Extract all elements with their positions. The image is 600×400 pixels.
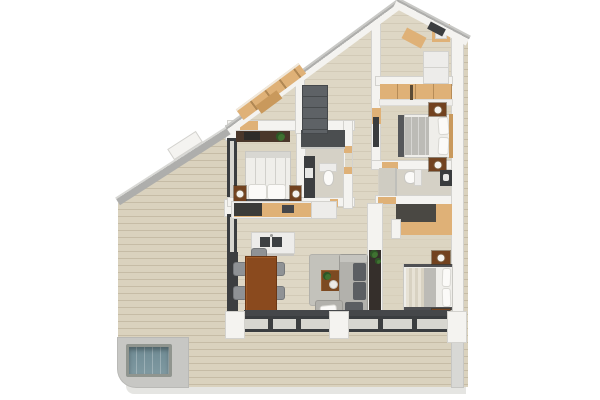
kitchen-cooktop-block <box>234 203 262 216</box>
bedroom3-nightstand-top <box>432 251 450 264</box>
bathroom1-door-gap <box>345 152 352 167</box>
lamp-icon <box>434 161 441 168</box>
door-mullion <box>378 316 383 332</box>
bedroom3-door-threshold <box>378 197 396 204</box>
bathroom1-door-jamb-top <box>344 146 352 153</box>
floor-plan-render <box>0 0 600 400</box>
sofa-cushion <box>353 282 366 300</box>
south-pier-west <box>226 312 244 338</box>
bedroom1-pillow-left <box>248 184 267 200</box>
bedroom2-foot-bench <box>398 115 405 157</box>
island-faucet <box>270 234 273 237</box>
bedroom1-desk-plant <box>276 132 285 141</box>
bedroom1-nightstand-left <box>234 186 246 201</box>
bathroom1-door-jamb-bottom <box>344 167 352 174</box>
kitchen-fridge <box>312 202 336 218</box>
dining-chair <box>234 287 246 299</box>
utility-appliance-bottom <box>424 68 448 83</box>
sofa-armrest <box>340 255 367 262</box>
bedroom2-nightstand-top <box>429 103 446 116</box>
plunge-pool <box>126 344 172 377</box>
bedroom3-duvet-striped <box>406 268 426 308</box>
island-basin-right <box>272 237 282 247</box>
bedroom2-wardrobe-slot <box>410 85 413 100</box>
bedroom1-laptop <box>244 132 260 140</box>
lamp-icon <box>438 254 445 261</box>
hall-wardrobe <box>303 86 327 133</box>
bedroom3-pillow-bottom <box>442 288 452 307</box>
island-basin-left <box>260 237 270 247</box>
wall-east-lower <box>452 340 463 387</box>
south-pier-mid <box>330 312 348 338</box>
bathroom2-sink <box>443 174 449 181</box>
dining-chair <box>234 263 246 275</box>
bedroom3-wardrobe-trim <box>392 220 400 238</box>
sofa-cushion <box>353 263 366 281</box>
lamp-icon <box>434 106 441 113</box>
door-mullion <box>268 316 273 332</box>
bedroom2-pillow-top <box>437 117 449 136</box>
bedroom3-wardrobe-horizontal <box>398 222 452 235</box>
bedroom1-nightstand-right <box>290 186 301 201</box>
utility-appliance-top <box>424 52 448 67</box>
bedroom2-headboard <box>449 114 453 158</box>
bedroom1-pillow-right <box>267 184 286 200</box>
south-pier-east <box>448 312 466 342</box>
door-mullion <box>412 316 417 332</box>
toilet2-tank <box>415 170 421 185</box>
kitchen-sink <box>282 205 294 213</box>
bedroom3-bedframe-top <box>404 264 452 267</box>
bathroom2-shower <box>379 168 397 196</box>
door-mullion <box>296 316 301 332</box>
bedroom2-pillow-bottom <box>438 137 450 156</box>
lamp-icon <box>292 190 299 197</box>
bedroom2-duvet-gray <box>405 117 429 155</box>
toilet1-bowl <box>323 170 334 186</box>
lamp-icon <box>237 190 244 197</box>
media-wall-plant-top <box>370 250 378 258</box>
coffee-table-bowl <box>330 281 337 288</box>
media-wall-plant-small <box>375 258 381 264</box>
bathroom1-sink <box>305 168 313 178</box>
bedroom2-tv-unit <box>373 117 379 147</box>
dining-table <box>246 257 276 313</box>
wall-east <box>452 36 463 340</box>
bedroom3-blanket-gray <box>424 268 436 308</box>
bedroom1-bed-foot <box>246 152 290 158</box>
living-tall-cabinet <box>227 252 238 316</box>
coffee-table-plant <box>323 272 331 280</box>
bedroom3-pillow-top <box>442 268 452 287</box>
